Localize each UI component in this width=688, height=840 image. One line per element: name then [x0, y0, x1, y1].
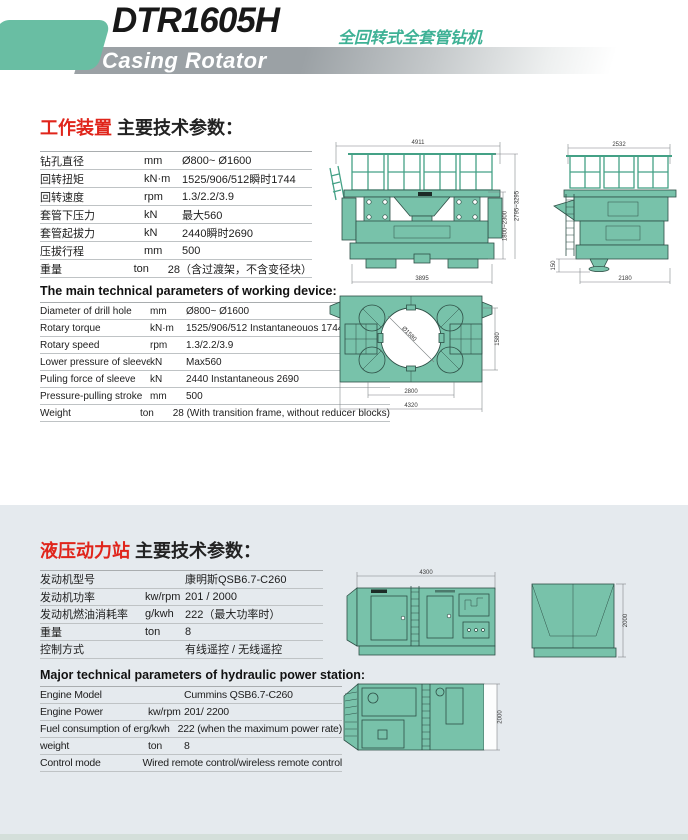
param-label: 重量 — [40, 624, 145, 640]
param-label: weight — [40, 740, 148, 752]
param-label: 重量 — [40, 261, 134, 277]
param-label: Rotary speed — [40, 340, 150, 351]
product-model-title: DTR1605H — [112, 3, 279, 39]
dim-label: 2795~3295 — [515, 190, 521, 221]
table-row: Fuel consumption of engineg/kwh222 (when… — [40, 721, 342, 738]
param-unit: mm — [150, 306, 186, 317]
dim-label: 1580 — [495, 332, 501, 346]
table-row: 压拔行程mm500 — [40, 242, 312, 260]
param-label: Puling force of sleeve — [40, 374, 150, 385]
param-label: Engine Model — [40, 689, 148, 701]
power-station-end-view-drawing: 2000 — [528, 576, 630, 674]
param-label: 套管下压力 — [40, 207, 144, 223]
param-value: Cummins QSB6.7-C260 — [184, 689, 342, 701]
param-label: Engine Power — [40, 706, 148, 718]
table-row: 套管起拔力kN2440瞬时2690 — [40, 224, 312, 242]
power-station-table-cn: 发动机型号康明斯QSB6.7-C260 发动机功率kw/rpm201 / 200… — [40, 570, 323, 659]
param-value: 500 — [182, 245, 312, 257]
param-unit: rpm — [150, 340, 186, 351]
dim-label: 4320 — [404, 403, 418, 409]
dim-label: 2000 — [623, 613, 629, 627]
dim-label: 2180 — [618, 276, 632, 282]
param-value: 222（最大功率时） — [185, 606, 323, 622]
param-label: Control mode — [40, 757, 117, 769]
container-end-body — [532, 584, 616, 657]
power-station-title-rest: 主要技术参数： — [130, 541, 261, 561]
table-row: 回转速度rpm1.3/2.2/3.9 — [40, 188, 312, 206]
param-value: 222 (when the maximum power rate) — [178, 723, 342, 735]
front-body — [342, 190, 502, 268]
param-label: 压拔行程 — [40, 243, 144, 259]
table-row: Control modeWired remote control/wireles… — [40, 755, 342, 772]
param-unit: kN — [144, 227, 182, 239]
param-label: Rotary torque — [40, 323, 150, 334]
table-row: 控制方式有线遥控 / 无线遥控 — [40, 641, 323, 659]
table-row: 发动机功率kw/rpm201 / 2000 — [40, 589, 323, 607]
machine-front-view-drawing: 4911 3895 1800~2300 2795~3295 — [322, 136, 522, 286]
param-label: Weight — [40, 408, 140, 419]
param-value: Ø800~ Ø1600 — [182, 155, 312, 167]
table-row: Engine ModelCummins QSB6.7-C260 — [40, 687, 342, 704]
spec-sheet-page: DTR1605H 全回转式全套管钻机 Casing Rotator 工作装置 主… — [0, 0, 688, 840]
container-plan-body — [344, 684, 497, 750]
table-row: Engine Powerkw/rpm201/ 2200 — [40, 704, 342, 721]
machine-side-view-drawing: 2532 150 2180 — [550, 136, 688, 286]
param-unit: kN·m — [144, 173, 182, 185]
machine-plan-view-drawing: Ø1580 1580 2800 4320 — [320, 288, 512, 420]
param-unit: mm — [144, 155, 182, 167]
dim-label: 150 — [551, 260, 557, 271]
power-station-title-red: 液压动力站 — [40, 541, 130, 561]
param-value: 201/ 2200 — [184, 706, 342, 718]
param-unit: mm — [150, 391, 186, 402]
dim-label: 1800~2300 — [503, 210, 509, 241]
power-station-plan-view-drawing: 2000 — [340, 682, 522, 754]
param-label: 回转速度 — [40, 189, 144, 205]
container-side-body — [347, 586, 495, 655]
param-unit: ton — [134, 263, 168, 275]
param-unit: kN — [150, 357, 186, 368]
param-value: 28（含过渡架，不含变径块） — [168, 261, 312, 277]
param-label: Pressure-pulling stroke — [40, 391, 150, 402]
param-label: 发动机功率 — [40, 589, 145, 605]
working-device-title-red: 工作装置 — [40, 118, 112, 138]
param-value: 1525/906/512瞬时1744 — [182, 171, 312, 187]
power-station-table-en: Engine ModelCummins QSB6.7-C260 Engine P… — [40, 686, 342, 772]
param-label: Fuel consumption of engine — [40, 723, 143, 735]
param-label: 控制方式 — [40, 641, 145, 657]
param-label: 套管起拔力 — [40, 225, 144, 241]
working-device-title-cn: 工作装置 主要技术参数： — [40, 118, 243, 138]
param-unit: kN — [150, 374, 186, 385]
power-station-title-en: Major technical parameters of hydraulic … — [40, 668, 365, 682]
table-row: 发动机型号康明斯QSB6.7-C260 — [40, 571, 323, 589]
working-device-title-rest: 主要技术参数： — [112, 118, 243, 138]
working-device-table-cn: 钻孔直径mmØ800~ Ø1600 回转扭矩kN·m1525/906/512瞬时… — [40, 151, 312, 278]
table-row: 套管下压力kN最大560 — [40, 206, 312, 224]
dim-label: 2800 — [404, 389, 418, 395]
param-label: 发动机型号 — [40, 571, 145, 587]
param-value: 康明斯QSB6.7-C260 — [185, 571, 323, 587]
param-unit: kN·m — [150, 323, 186, 334]
table-row: 钻孔直径mmØ800~ Ø1600 — [40, 152, 312, 170]
param-unit: g/kwh — [143, 723, 177, 735]
param-value: 最大560 — [182, 207, 312, 223]
param-value: 1.3/2.2/3.9 — [182, 191, 312, 203]
table-row: 重量ton8 — [40, 624, 323, 642]
param-value: 有线遥控 / 无线遥控 — [185, 641, 323, 657]
param-value: 8 — [184, 740, 342, 752]
table-row: 回转扭矩kN·m1525/906/512瞬时1744 — [40, 170, 312, 188]
param-unit: ton — [148, 740, 184, 752]
param-unit: kw/rpm — [148, 706, 184, 718]
param-unit: kw/rpm — [145, 591, 185, 603]
dim-label: 2532 — [612, 142, 626, 148]
param-label: 钻孔直径 — [40, 153, 144, 169]
param-unit: mm — [144, 245, 182, 257]
dim-label: 3895 — [415, 276, 429, 282]
table-row: 重量ton28（含过渡架，不含变径块） — [40, 260, 312, 278]
param-value: Wired remote control/wireless remote con… — [142, 757, 342, 769]
dim-label: 4300 — [419, 570, 433, 576]
side-body — [554, 190, 676, 272]
power-station-side-view-drawing: 4300 — [343, 568, 507, 668]
param-value: 2440瞬时2690 — [182, 225, 312, 241]
dim-label: 4911 — [412, 140, 426, 146]
param-value: 201 / 2000 — [185, 591, 323, 603]
power-station-title-cn: 液压动力站 主要技术参数： — [40, 541, 261, 561]
product-subtitle-en: Casing Rotator — [102, 48, 267, 73]
param-unit: g/kwh — [145, 608, 185, 620]
product-subtitle-cn: 全回转式全套管钻机 — [338, 24, 482, 48]
param-value: 8 — [185, 626, 323, 638]
param-label: 发动机燃油消耗率 — [40, 606, 145, 622]
param-unit: ton — [140, 408, 173, 419]
header-teal-shape — [0, 20, 111, 70]
param-unit: rpm — [144, 191, 182, 203]
table-row: weightton8 — [40, 738, 342, 755]
param-unit: ton — [145, 626, 185, 638]
param-label: 回转扭矩 — [40, 171, 144, 187]
param-label: Lower pressure of sleeve — [40, 357, 150, 368]
dim-label: 2000 — [498, 710, 504, 724]
table-row: 发动机燃油消耗率g/kwh222（最大功率时） — [40, 606, 323, 624]
bottom-accent-strip — [0, 834, 688, 840]
param-unit: kN — [144, 209, 182, 221]
side-railings — [566, 156, 672, 188]
param-label: Diameter of drill hole — [40, 306, 150, 317]
working-device-title-en: The main technical parameters of working… — [40, 284, 337, 298]
